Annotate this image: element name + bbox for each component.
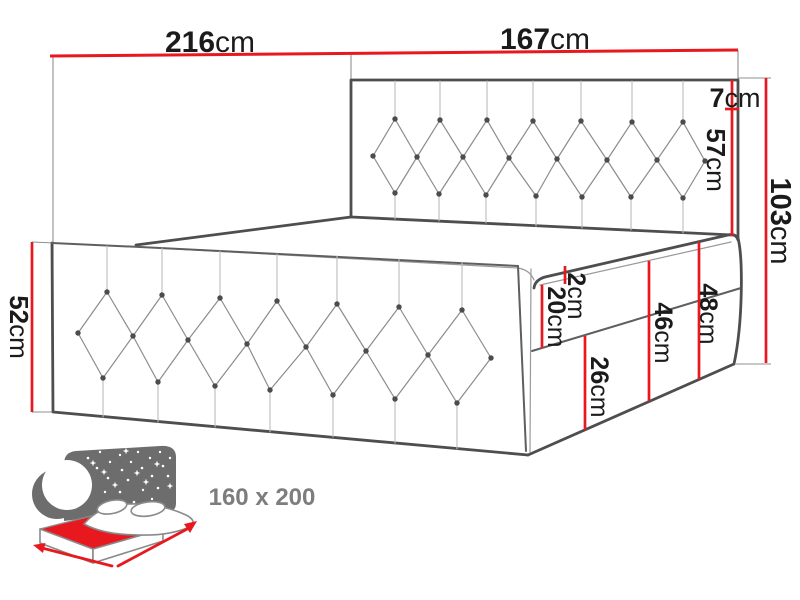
icon-moon-cut [42,460,92,510]
dim-line-top [50,50,738,56]
dimension-lines [32,50,766,430]
side-panel-buttons [75,289,493,405]
dim-label-20: 20cm [542,286,570,347]
side-panel [52,243,531,455]
dim-label-103: 103cm [764,177,796,264]
dim-label-52: 52cm [4,295,34,359]
dim-label-48: 48cm [694,283,722,344]
bed-drawing [52,80,741,455]
bed-dimension-diagram-page: 216cm 167cm 7cm 57cm 103cm 2cm 20cm 46cm… [0,0,800,600]
headboard-panel [351,80,738,238]
icon-size-label: 160 x 200 [209,484,316,511]
side-panel-tufting-diamonds [78,292,491,403]
dim-label-167: 167cm [500,23,590,56]
bed-dimension-diagram: 216cm 167cm 7cm 57cm 103cm 2cm 20cm 46cm… [0,0,800,600]
bed-size-icon: 160 x 200 [19,446,315,566]
dim-label-7: 7cm [709,83,760,113]
side-panel-creases [103,246,462,449]
headboard-buttons [370,116,707,200]
dim-label-57: 57cm [701,128,731,192]
dim-label-46: 46cm [649,302,677,363]
dim-label-216: 216cm [165,26,255,59]
headboard-creases [395,81,683,233]
dim-label-26: 26cm [585,356,613,417]
